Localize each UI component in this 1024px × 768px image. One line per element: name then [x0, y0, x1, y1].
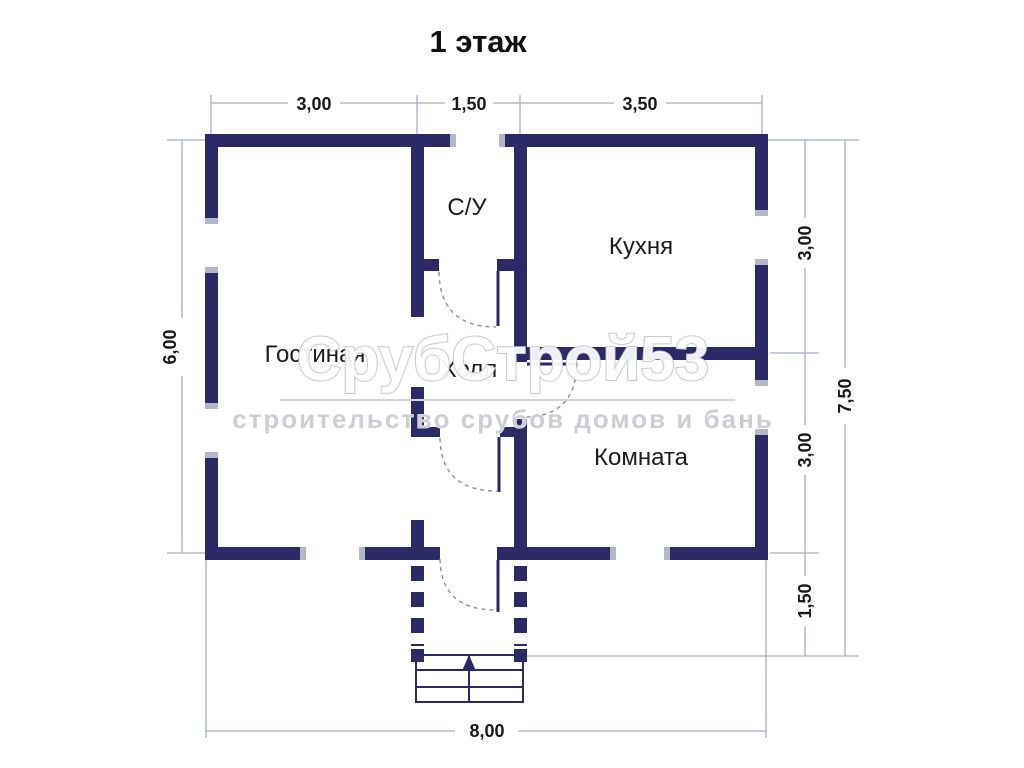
window-bottom-living: [300, 547, 365, 560]
watermark: СрубСтрой53 строительство срубов домов и…: [232, 325, 774, 434]
dimension-left: 6,00: [160, 140, 205, 553]
door-bathroom: [439, 271, 498, 327]
window-bottom-bedroom: [610, 547, 670, 560]
dim-bottom: 8,00: [469, 721, 504, 741]
dim-right-2: 3,00: [795, 432, 815, 467]
window-right-kitchen: [755, 210, 768, 265]
dim-top-2: 1,50: [451, 94, 486, 114]
window-left-upper: [205, 218, 218, 273]
door-entrance: [440, 559, 498, 612]
window-left-lower: [205, 403, 218, 458]
window-top-bathroom: [450, 134, 505, 147]
dim-right-3: 1,50: [795, 583, 815, 618]
watermark-brand: СрубСтрой53: [297, 325, 710, 394]
entrance-stairs: [416, 655, 523, 702]
dimension-bottom: 8,00: [206, 560, 766, 741]
doors: [439, 271, 577, 612]
dim-right-1: 3,00: [795, 225, 815, 260]
dimension-top: 3,00 1,50 3,50: [211, 94, 762, 134]
door-vestibule: [440, 437, 499, 492]
dim-top-3: 3,50: [622, 94, 657, 114]
dim-right-total: 7,50: [835, 378, 855, 413]
room-label-bedroom: Комната: [594, 444, 689, 471]
floor-plan-page: 1 этаж 3,00 1,50 3,50 6,00: [0, 0, 1024, 768]
room-label-kitchen: Кухня: [609, 233, 673, 260]
porch: [411, 566, 527, 702]
watermark-tagline: строительство срубов домов и бань: [232, 404, 774, 434]
dimension-right-total: 7,50: [835, 140, 855, 656]
stairs-up-arrow-head: [462, 655, 476, 671]
dim-left: 6,00: [160, 329, 180, 364]
dim-top-1: 3,00: [296, 94, 331, 114]
room-label-bathroom: С/У: [447, 194, 487, 221]
page-title: 1 этаж: [430, 24, 528, 59]
floor-plan-canvas: 1 этаж 3,00 1,50 3,50 6,00: [0, 0, 1024, 768]
dimension-right-inner: 3,00 3,00 1,50: [527, 140, 859, 656]
